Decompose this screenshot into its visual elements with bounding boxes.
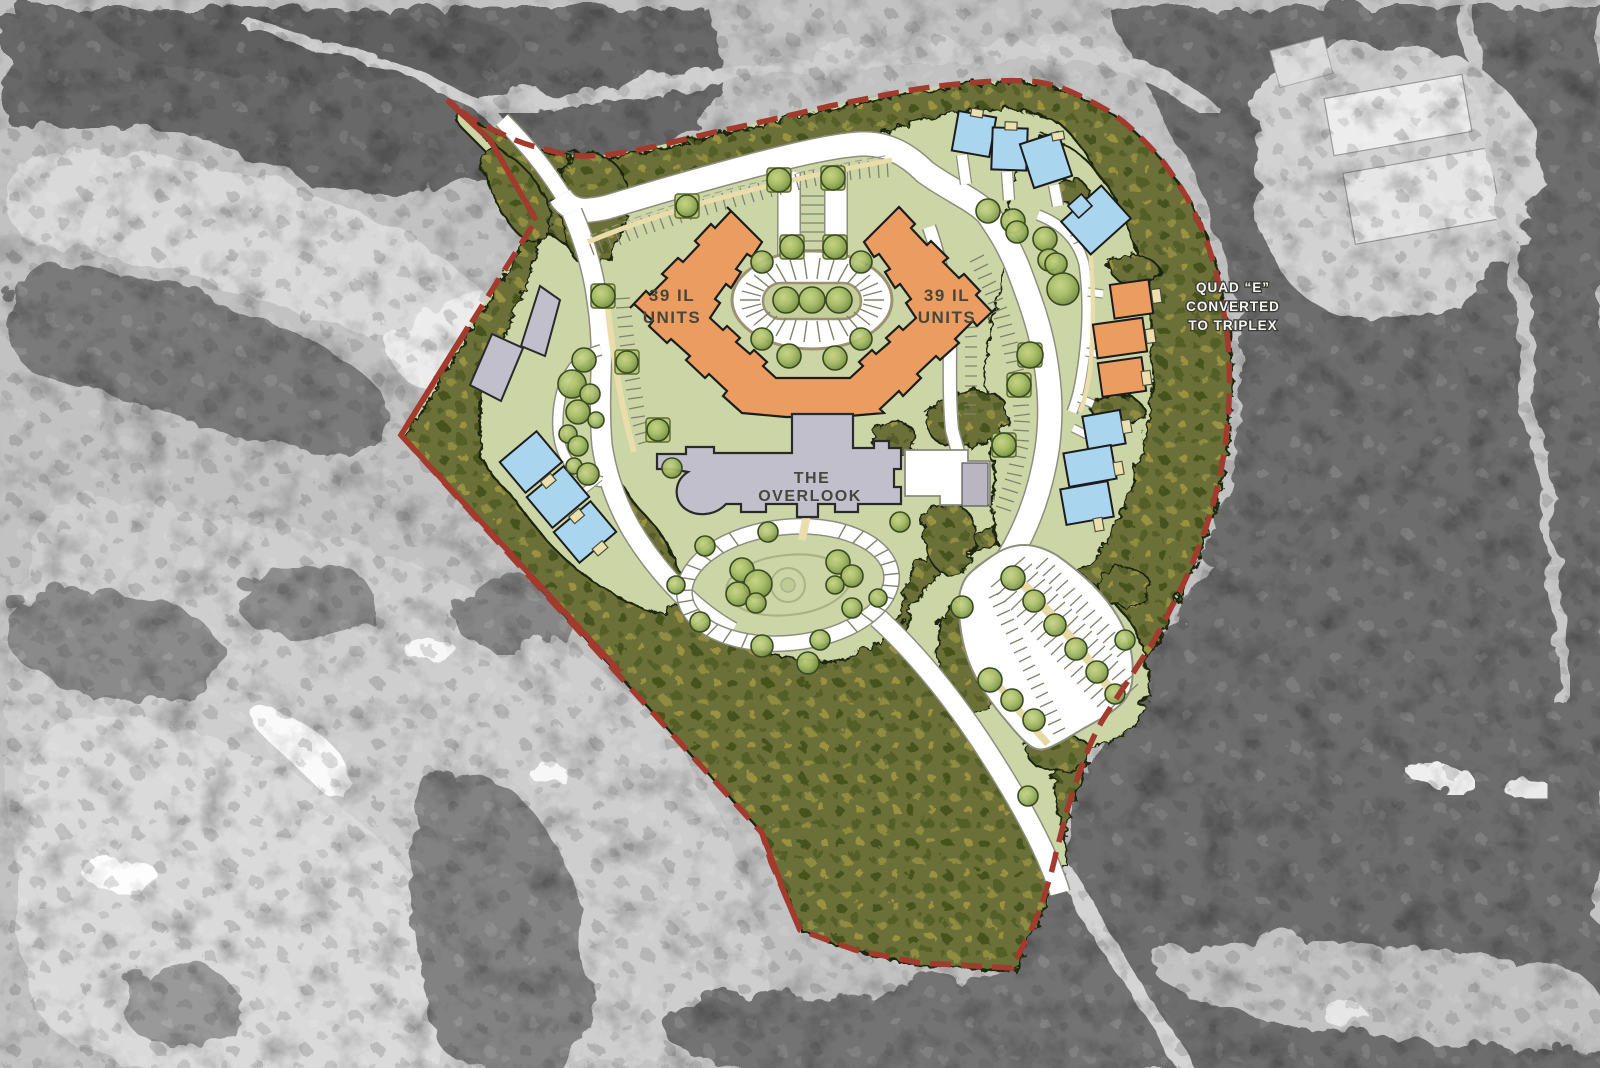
svg-text:THE: THE	[794, 470, 831, 487]
svg-text:QUAD “E”: QUAD “E”	[1196, 280, 1270, 295]
svg-text:CONVERTED: CONVERTED	[1186, 299, 1280, 314]
svg-text:UNITS: UNITS	[918, 308, 977, 327]
svg-text:39 IL: 39 IL	[924, 286, 970, 305]
svg-text:39 IL: 39 IL	[649, 286, 695, 305]
svg-text:TO TRIPLEX: TO TRIPLEX	[1188, 318, 1277, 333]
svg-text:UNITS: UNITS	[643, 308, 702, 327]
svg-text:OVERLOOK: OVERLOOK	[758, 488, 862, 505]
